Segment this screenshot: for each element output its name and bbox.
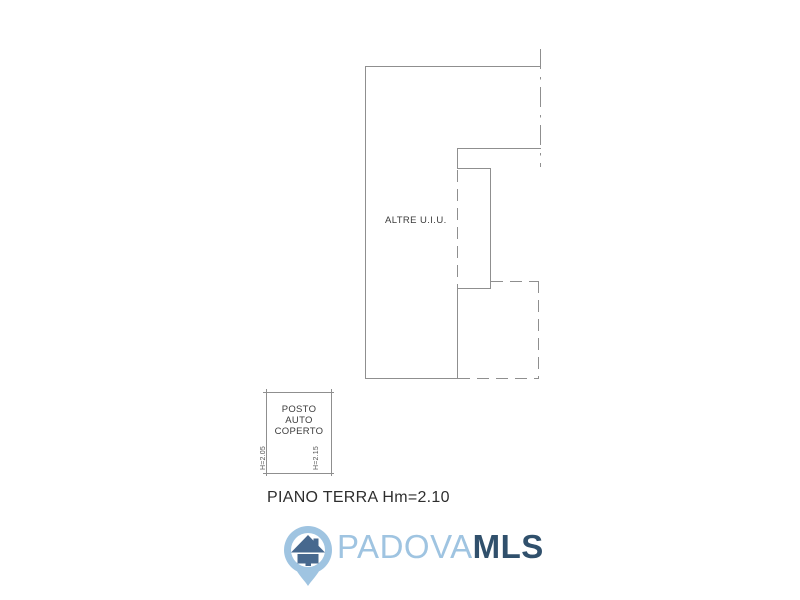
carport-height-left: H=2.05 (260, 446, 268, 470)
carport-label-line2: AUTO (267, 415, 331, 426)
wall-bottom-left (365, 378, 458, 379)
carport-label-line3: COPERTO (267, 426, 331, 437)
logo-text-mls: MLS (473, 528, 544, 565)
dashdot-boundary-right (540, 49, 541, 167)
wall-inner-h-upper (457, 148, 541, 149)
floor-caption: PIANO TERRA Hm=2.10 (267, 489, 450, 507)
carport-box-edge-right (331, 389, 332, 476)
wall-inner-v-right (490, 168, 491, 288)
carport-label-line1: POSTO (267, 404, 331, 415)
dashed-wall-lower-right-side (538, 281, 539, 378)
logo-wordmark: PADOVAMLS (337, 530, 544, 563)
dashed-wall-bottom (458, 378, 539, 379)
room-label-altre-uiu: ALTRE U.I.U. (385, 215, 447, 226)
floorplan-page: ALTRE U.I.U. POSTO AUTO COPERTO H=2.05 H… (0, 0, 800, 600)
dashed-wall-center (457, 170, 458, 288)
wall-top (365, 66, 541, 67)
carport-box-edge-bottom (263, 473, 334, 474)
logo-text-padova: PADOVA (337, 528, 473, 565)
wall-left (365, 66, 366, 378)
carport-label: POSTO AUTO COPERTO (267, 404, 331, 437)
wall-inner-h-lower (457, 288, 491, 289)
map-pin-house-icon (280, 525, 336, 587)
wall-inner-v-notch (457, 148, 458, 168)
carport-height-right: H=2.15 (313, 446, 321, 470)
wall-inner-v-lower (457, 288, 458, 378)
wall-inner-h-notch (457, 168, 491, 169)
dashed-wall-lower-right-top (491, 281, 538, 282)
carport-box-edge-top (263, 392, 334, 393)
